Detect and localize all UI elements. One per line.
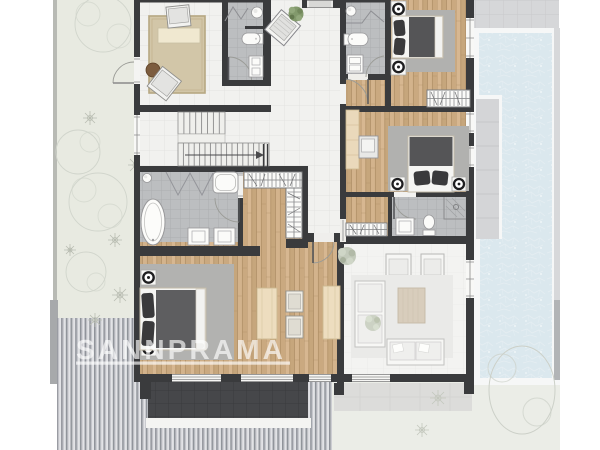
svg-text:SANNPRAMA: SANNPRAMA xyxy=(76,334,286,365)
